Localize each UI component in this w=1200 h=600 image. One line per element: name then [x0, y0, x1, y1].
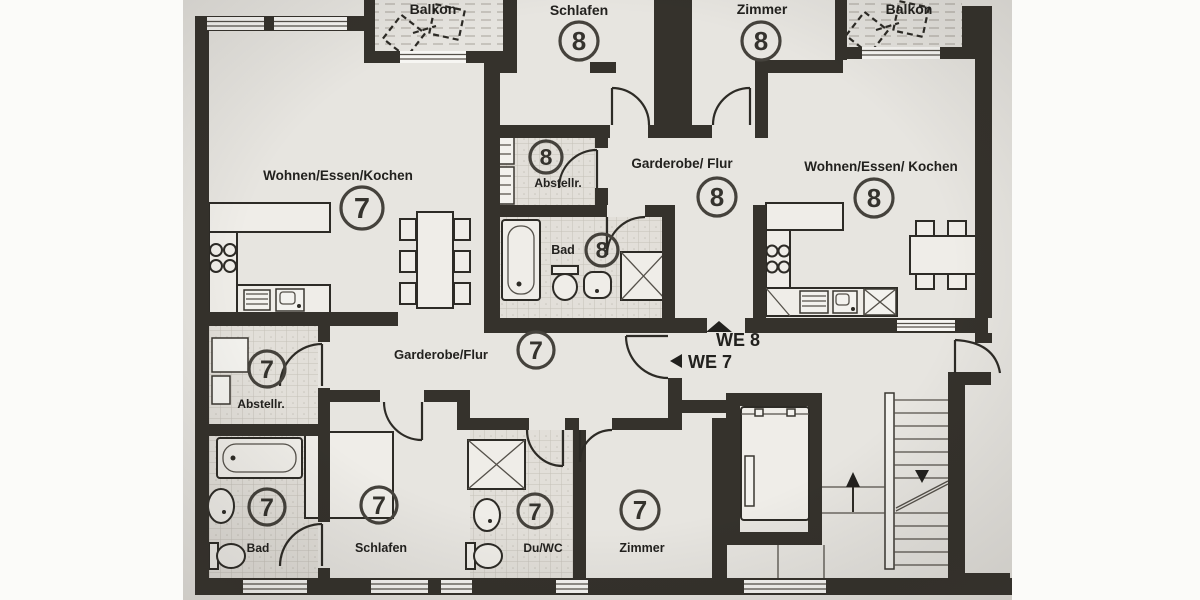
photo-vignette: [183, 0, 1012, 600]
floor-plan-svg: Balkon Balkon Schlafen 8 Zimmer 8 Wohnen…: [0, 0, 1200, 600]
floor-plan-photo: Balkon Balkon Schlafen 8 Zimmer 8 Wohnen…: [0, 0, 1200, 600]
